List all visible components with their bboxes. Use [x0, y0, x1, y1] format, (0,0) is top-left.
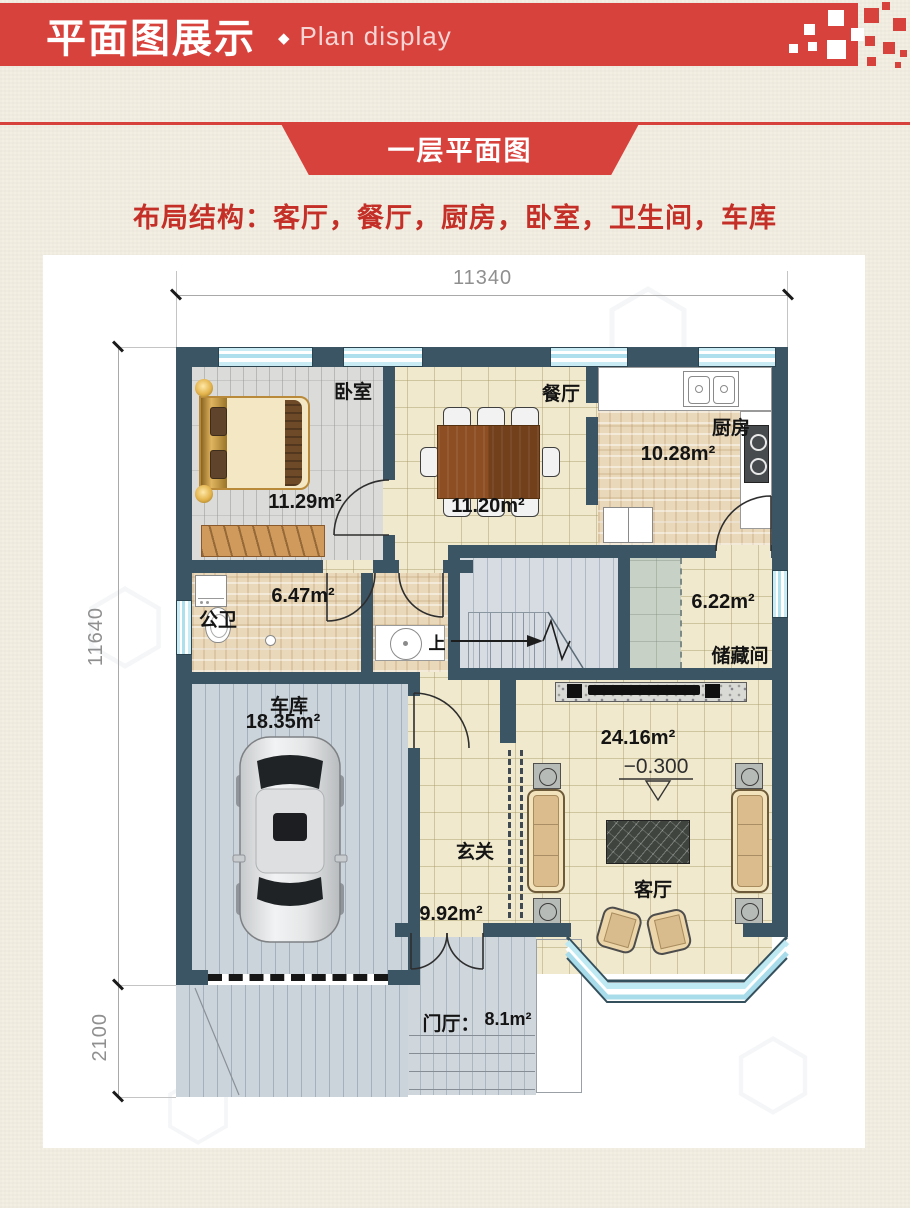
- car-icon: [233, 737, 347, 942]
- room-area-dining: 11.20m²: [451, 495, 524, 518]
- page: 平面图展示 ◆ Plan display 一层平面图 布局结构：客厅，餐厅，厨房…: [0, 0, 910, 1208]
- bay-window: [567, 937, 787, 1002]
- page-title: 平面图展示: [46, 6, 256, 64]
- room-label-foyer: 玄关: [456, 837, 494, 864]
- stairs-up-label: 上: [429, 629, 446, 654]
- entry-door-right: [447, 933, 483, 969]
- room-label-storage: 储藏间: [711, 641, 768, 668]
- kitchen-door: [716, 496, 771, 551]
- room-area-storage: 6.22m²: [691, 591, 754, 614]
- room-area-kitchen: 10.28m²: [641, 443, 716, 466]
- stairs-marks: [451, 612, 583, 668]
- room-area-foyer: 9.92m²: [419, 903, 482, 926]
- section-title: 一层平面图: [388, 129, 533, 168]
- entry-door-left: [411, 933, 447, 969]
- room-area-living: 24.16m²: [601, 727, 676, 750]
- room-area-porch: 8.1m²: [484, 1009, 531, 1030]
- room-label-dining: 餐厅: [542, 379, 580, 406]
- room-label-living: 客厅: [634, 875, 672, 902]
- room-label-kitchen: 厨房: [712, 413, 750, 440]
- level-mark: [619, 779, 693, 800]
- room-label-bedroom: 卧室: [334, 377, 372, 404]
- garage-door: [414, 693, 469, 748]
- floor-plan-card: 11340 11640 2100: [43, 255, 865, 1148]
- door-arcs: [327, 480, 771, 969]
- room-area-bathroom: 6.47m²: [271, 585, 334, 608]
- diamond-icon: ◆: [278, 29, 290, 47]
- bedroom-door: [334, 480, 389, 535]
- room-area-bedroom: 11.29m²: [268, 491, 341, 514]
- slope-line: [195, 988, 239, 1095]
- room-label-bathroom: 公卫: [199, 605, 237, 632]
- room-area-garage: 18.35m²: [246, 711, 321, 734]
- layout-description: 布局结构：客厅，餐厅，厨房，卧室，卫生间，车库: [0, 196, 910, 235]
- shower-door: [399, 573, 443, 617]
- room-label-porch: 门厅：: [422, 1009, 479, 1036]
- level-value: −0.300: [624, 755, 689, 779]
- section-ribbon: 一层平面图: [280, 122, 640, 175]
- page-subtitle: Plan display: [300, 21, 452, 52]
- header-banner: 平面图展示 ◆ Plan display: [0, 3, 858, 66]
